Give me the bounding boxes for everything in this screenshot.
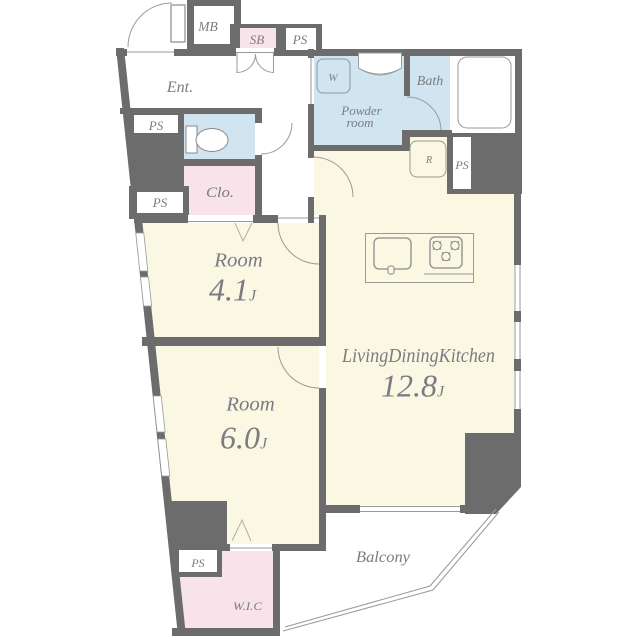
svg-text:room: room xyxy=(347,115,374,130)
svg-text:Room: Room xyxy=(213,250,263,272)
svg-text:Balcony: Balcony xyxy=(356,549,411,566)
svg-text:LivingDiningKitchen: LivingDiningKitchen xyxy=(341,345,495,367)
svg-text:Clo.: Clo. xyxy=(206,185,234,201)
svg-text:PS: PS xyxy=(190,556,204,570)
svg-text:W.I.C: W.I.C xyxy=(233,599,263,613)
svg-text:Room: Room xyxy=(225,394,275,416)
svg-text:MB: MB xyxy=(197,19,218,34)
svg-text:Ent.: Ent. xyxy=(166,79,193,96)
svg-text:SB: SB xyxy=(250,32,265,47)
svg-text:Bath: Bath xyxy=(417,74,443,89)
svg-text:PS: PS xyxy=(152,195,168,210)
svg-text:W: W xyxy=(328,72,338,84)
svg-text:PS: PS xyxy=(148,118,164,133)
svg-text:PS: PS xyxy=(292,32,308,47)
svg-text:PS: PS xyxy=(454,158,468,172)
svg-text:12.8J: 12.8J xyxy=(381,368,445,404)
svg-text:R: R xyxy=(425,155,432,166)
